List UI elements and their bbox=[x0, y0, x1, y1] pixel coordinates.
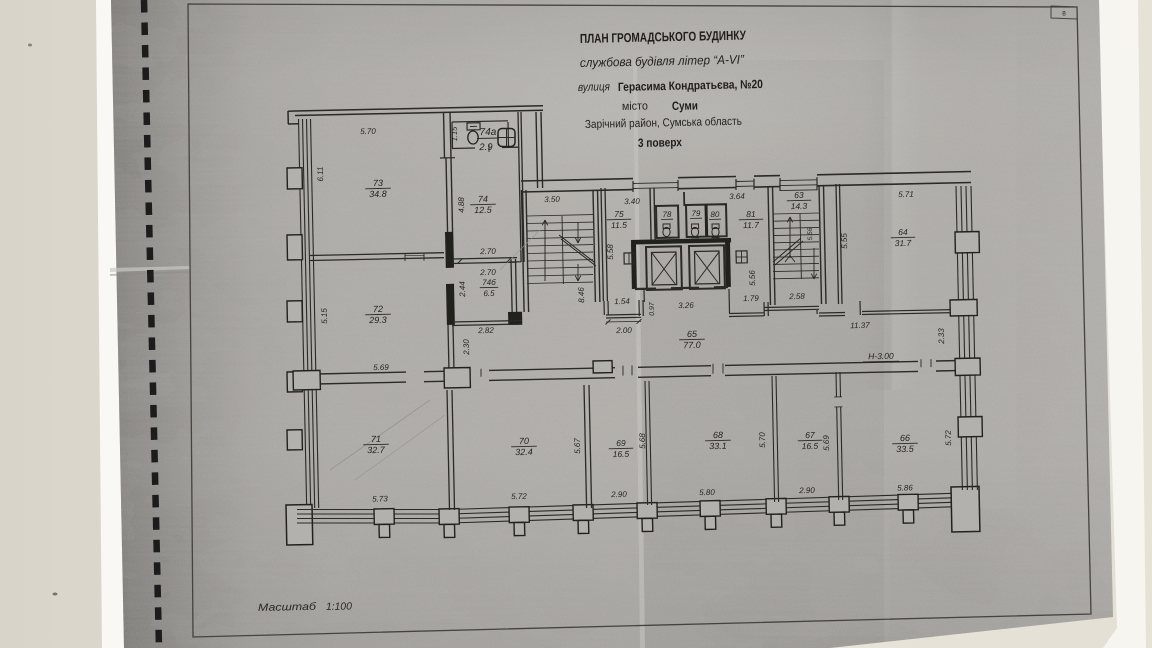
svg-text:75: 75 bbox=[614, 209, 624, 219]
svg-text:67: 67 bbox=[805, 430, 815, 440]
svg-text:11.5: 11.5 bbox=[611, 220, 627, 230]
svg-text:8.46: 8.46 bbox=[577, 287, 586, 303]
svg-text:вулиця: вулиця bbox=[578, 81, 610, 94]
svg-text:2.70: 2.70 bbox=[479, 268, 496, 277]
svg-text:2.90: 2.90 bbox=[610, 490, 627, 499]
svg-text:34.8: 34.8 bbox=[369, 189, 387, 199]
svg-text:1.15: 1.15 bbox=[450, 126, 459, 142]
svg-text:5.55: 5.55 bbox=[840, 233, 849, 249]
svg-text:5.56: 5.56 bbox=[748, 270, 757, 286]
svg-text:3.26: 3.26 bbox=[678, 301, 694, 310]
svg-text:11.37: 11.37 bbox=[850, 321, 870, 330]
svg-text:77.0: 77.0 bbox=[683, 340, 701, 350]
svg-text:33.5: 33.5 bbox=[896, 444, 915, 454]
svg-text:31.7: 31.7 bbox=[895, 238, 912, 248]
svg-text:місто: місто bbox=[622, 100, 648, 113]
svg-text:4.88: 4.88 bbox=[457, 197, 466, 213]
svg-text:5.72: 5.72 bbox=[511, 492, 527, 501]
svg-text:5.86: 5.86 bbox=[897, 483, 913, 492]
svg-text:5.70: 5.70 bbox=[758, 432, 767, 448]
svg-text:80: 80 bbox=[710, 210, 720, 219]
svg-text:32.7: 32.7 bbox=[367, 445, 386, 455]
svg-text:3 поверх: 3 поверх bbox=[638, 135, 683, 150]
svg-text:5.69: 5.69 bbox=[373, 363, 389, 372]
svg-text:70: 70 bbox=[519, 436, 529, 446]
svg-text:72: 72 bbox=[373, 304, 383, 314]
svg-text:78: 78 bbox=[662, 210, 672, 219]
svg-text:Н-3.00: Н-3.00 bbox=[868, 351, 894, 362]
svg-text:1.54: 1.54 bbox=[614, 297, 630, 306]
svg-text:6.5: 6.5 bbox=[483, 289, 495, 298]
svg-text:74: 74 bbox=[478, 194, 488, 204]
svg-text:74а: 74а bbox=[479, 127, 496, 138]
svg-text:5.73: 5.73 bbox=[372, 494, 388, 503]
svg-text:8: 8 bbox=[1062, 10, 1066, 17]
svg-text:2.58: 2.58 bbox=[788, 292, 805, 301]
svg-text:29.3: 29.3 bbox=[368, 315, 387, 325]
svg-text:71: 71 bbox=[371, 434, 381, 444]
svg-text:5.15: 5.15 bbox=[320, 308, 329, 324]
svg-text:66: 66 bbox=[900, 433, 910, 443]
svg-text:2.82: 2.82 bbox=[477, 326, 494, 335]
svg-text:32.4: 32.4 bbox=[515, 447, 533, 457]
svg-text:73: 73 bbox=[373, 178, 383, 188]
svg-text:12.5: 12.5 bbox=[474, 205, 493, 215]
svg-text:2.30: 2.30 bbox=[462, 339, 471, 356]
svg-text:5.70: 5.70 bbox=[360, 127, 376, 136]
svg-text:5.72: 5.72 bbox=[944, 430, 953, 446]
svg-text:2.33: 2.33 bbox=[937, 328, 946, 345]
svg-text:16.5: 16.5 bbox=[802, 441, 819, 451]
svg-text:5.56: 5.56 bbox=[807, 227, 814, 240]
svg-text:5.80: 5.80 bbox=[699, 488, 715, 497]
svg-text:0.97: 0.97 bbox=[649, 301, 656, 316]
svg-text:2.9: 2.9 bbox=[478, 142, 493, 153]
svg-text:Суми: Суми bbox=[672, 98, 698, 113]
svg-text:2.90: 2.90 bbox=[798, 486, 815, 495]
svg-text:3.64: 3.64 bbox=[729, 192, 745, 201]
svg-text:3.40: 3.40 bbox=[624, 197, 640, 206]
svg-text:1:100: 1:100 bbox=[326, 600, 352, 613]
svg-text:5.67: 5.67 bbox=[573, 438, 582, 454]
svg-text:64: 64 bbox=[898, 227, 908, 237]
svg-text:11.7: 11.7 bbox=[743, 220, 759, 230]
svg-text:5.69: 5.69 bbox=[822, 435, 831, 451]
svg-text:81: 81 bbox=[746, 209, 756, 219]
svg-text:68: 68 bbox=[713, 430, 723, 440]
svg-text:1.79: 1.79 bbox=[743, 294, 759, 303]
svg-text:5.68: 5.68 bbox=[638, 433, 647, 449]
svg-text:2.70: 2.70 bbox=[479, 247, 496, 256]
svg-text:74б: 74б bbox=[482, 278, 496, 287]
svg-text:3.50: 3.50 bbox=[544, 195, 560, 204]
svg-text:14.3: 14.3 bbox=[791, 201, 808, 211]
svg-text:Масштаб: Масштаб bbox=[258, 601, 318, 614]
svg-text:33.1: 33.1 bbox=[709, 441, 727, 451]
svg-text:5.58: 5.58 bbox=[606, 244, 615, 260]
svg-text:5.71: 5.71 bbox=[898, 190, 914, 199]
svg-text:2.00: 2.00 bbox=[615, 326, 632, 335]
svg-text:65: 65 bbox=[687, 329, 698, 339]
svg-text:79: 79 bbox=[691, 209, 701, 218]
svg-text:6.11: 6.11 bbox=[316, 166, 325, 181]
svg-text:16.5: 16.5 bbox=[613, 449, 630, 459]
svg-text:63: 63 bbox=[794, 190, 804, 200]
svg-text:69: 69 bbox=[616, 438, 626, 448]
svg-text:2.44: 2.44 bbox=[458, 281, 467, 298]
